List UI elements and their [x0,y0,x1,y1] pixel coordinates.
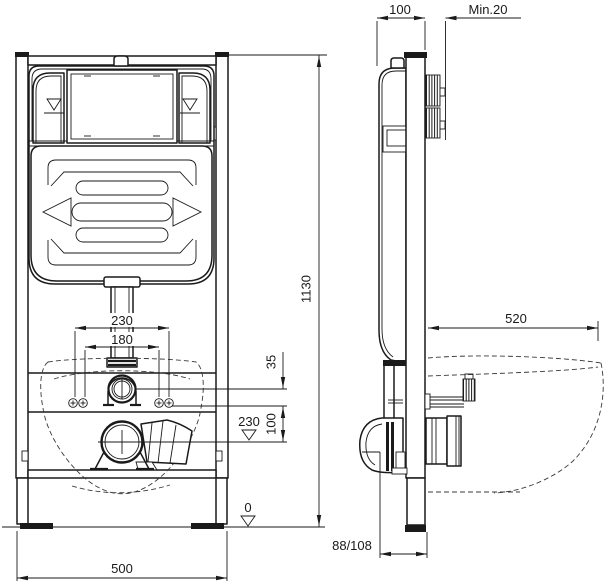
dim-wall-clearance-label: Min.20 [468,2,507,17]
side-bowl-rim [428,367,598,376]
dim-bowl-depth-label: 520 [505,311,527,326]
elbow-bracket-base [392,468,407,474]
actuator-block-upper [426,75,440,106]
front-inlet [103,376,141,406]
side-rail [406,57,425,478]
front-left-rail [16,56,28,478]
dim-fixing-inner-label: 180 [111,332,133,347]
side-flush-actuator [426,21,446,140]
side-inlet-pipe [388,374,475,409]
actuator-clip [440,88,445,96]
front-left-rail-cap [15,52,29,57]
technical-drawing-page: 1130 230 180 35 100 230 0 500 [0,0,608,583]
front-cistern [29,56,214,284]
front-right-rail [216,56,228,478]
dim-drain-height-label: 230 [238,414,260,429]
side-bowl-curve [494,363,603,493]
inlet-cap [425,394,430,409]
dim-inlet-drain-gap-label: 100 [264,413,279,435]
elbow-band [391,422,394,471]
actuator-clip [440,121,445,129]
front-view [15,52,229,529]
dim-inlet-offset-label: 35 [264,355,279,369]
side-rail-cap [404,52,427,58]
dim-frame-height-label: 1130 [299,275,314,303]
side-view [360,21,603,532]
front-left-leg [17,478,28,524]
elbow-band [386,422,389,471]
front-bottom-crossbar [28,470,216,478]
side-frame [404,52,427,532]
cistern-top-cap [114,56,128,66]
front-drain [90,420,192,470]
front-right-foot [191,523,224,529]
front-right-leg [216,478,227,524]
zero-level-icon [241,516,255,526]
side-leg [407,478,425,525]
level-marker-icon [242,430,256,440]
side-cistern-cap [391,58,404,68]
wc-frame-installation-drawing: 1130 230 180 35 100 230 0 500 [0,0,608,583]
drain-connector-body [426,418,447,464]
front-right-rail-cap [215,52,229,57]
actuator-block-lower [426,108,440,138]
bowl-dashed-bottom [72,485,170,493]
front-left-foot [20,523,53,529]
dim-outlet-offset-label: 88/108 [332,538,372,553]
dim-fixing-outer-label: 230 [111,313,133,328]
flush-pipe-collar [104,277,140,287]
dim-frame-width-label: 500 [111,561,133,576]
side-foot [405,525,426,532]
front-right-lower-clip [216,451,222,461]
side-bowl-top [428,356,601,363]
front-left-lower-clip [22,451,28,461]
dim-frame-depth-label: 100 [389,2,411,17]
access-panel-inner [71,74,173,139]
dim-floor-level-label: 0 [244,500,251,515]
side-cistern-seam [383,360,406,366]
